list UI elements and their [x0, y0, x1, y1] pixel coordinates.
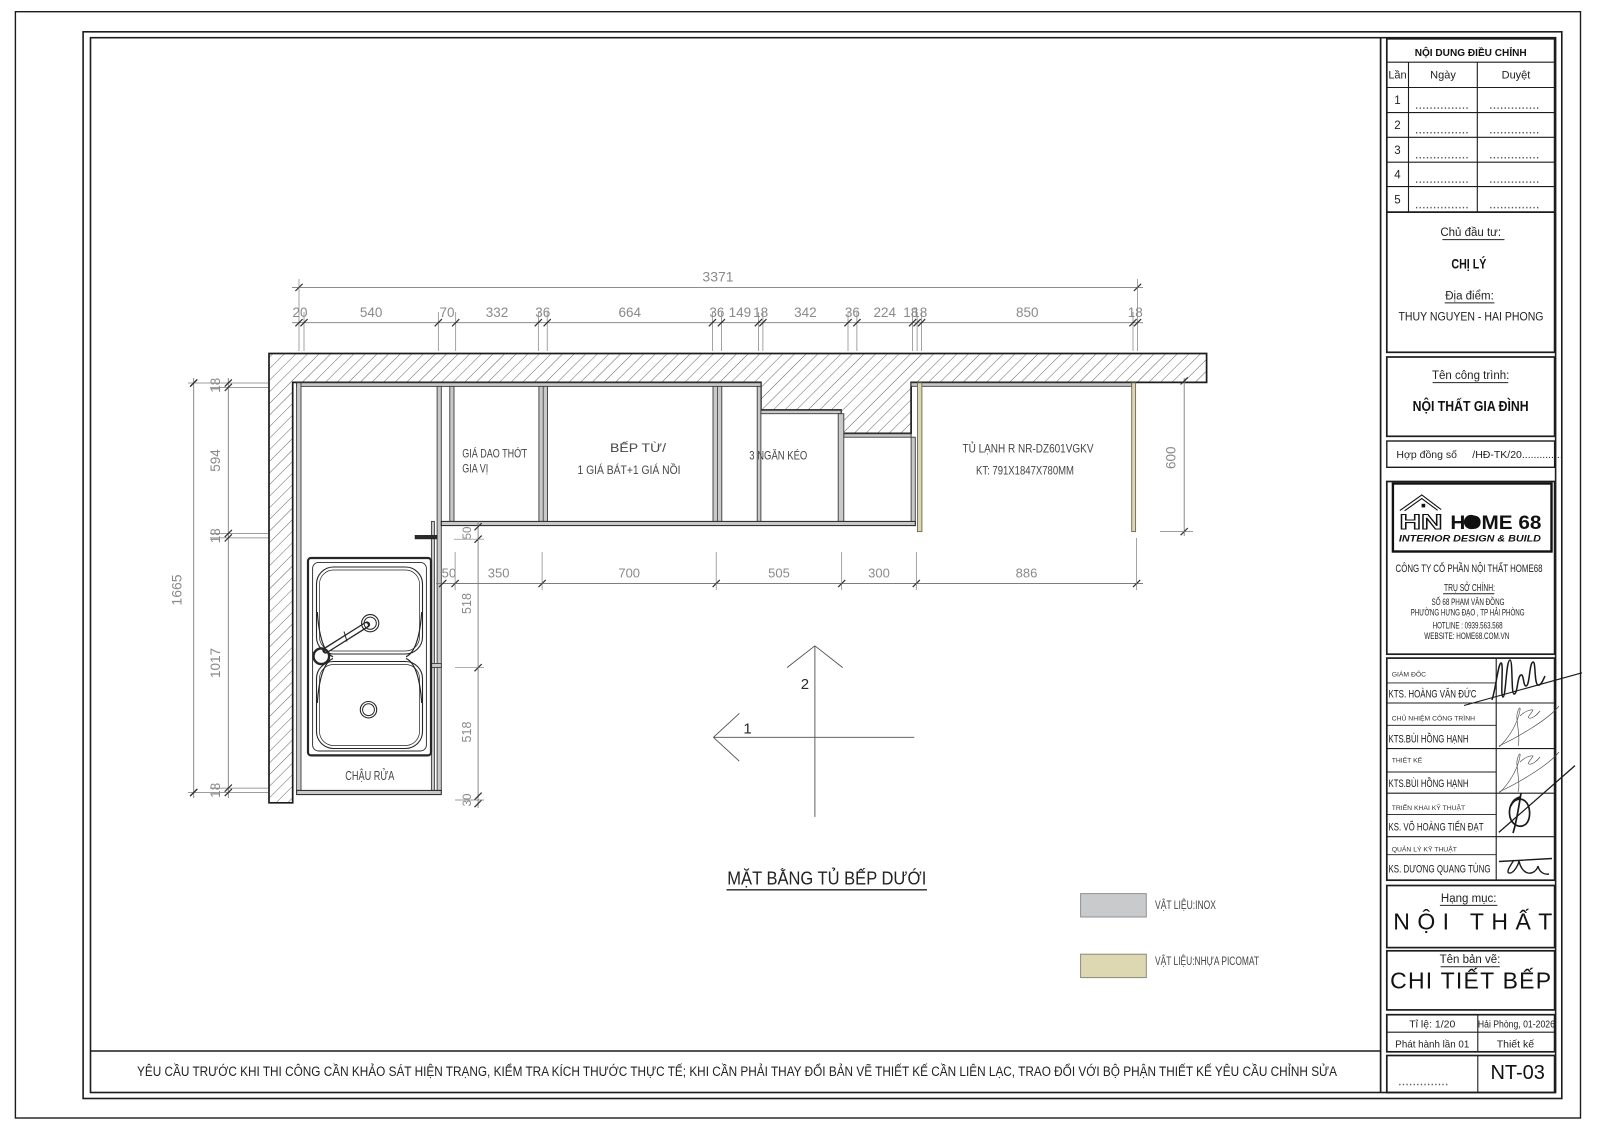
svg-text:KT: 791X1847X780MM: KT: 791X1847X780MM	[976, 464, 1074, 478]
svg-text:36: 36	[535, 305, 550, 320]
svg-text:664: 664	[619, 305, 642, 320]
svg-text:3 NGĂN KÉO: 3 NGĂN KÉO	[749, 448, 807, 463]
svg-text:Hợp đồng số: Hợp đồng số	[1396, 449, 1457, 461]
svg-text:GIÁ DAO THỚT: GIÁ DAO THỚT	[462, 446, 527, 461]
svg-text:Hải Phòng, 01-2026: Hải Phòng, 01-2026	[1478, 1019, 1555, 1030]
svg-text:30: 30	[462, 794, 474, 807]
svg-text:TRIỂN KHAI KỸ THUẬT: TRIỂN KHAI KỸ THUẬT	[1392, 803, 1466, 812]
svg-text:YÊU CẦU TRƯỚC KHI THI CÔNG CẦN: YÊU CẦU TRƯỚC KHI THI CÔNG CẦN KHẢO SÁT …	[137, 1064, 1337, 1079]
svg-text:18: 18	[208, 528, 223, 543]
svg-text:Tên bản vẽ:: Tên bản vẽ:	[1440, 954, 1501, 966]
svg-text:KS. DƯƠNG QUANG TÙNG: KS. DƯƠNG QUANG TÙNG	[1389, 863, 1491, 876]
svg-text:1: 1	[743, 721, 751, 738]
svg-text:18: 18	[208, 378, 223, 393]
svg-text:2: 2	[1394, 120, 1400, 132]
svg-text:THUY NGUYEN - HAI PHONG: THUY NGUYEN - HAI PHONG	[1399, 312, 1544, 324]
svg-text:/HĐ-TK/20..............: /HĐ-TK/20..............	[1472, 449, 1562, 461]
svg-text:3371: 3371	[702, 269, 733, 285]
svg-text:CHẬU RỬA: CHẬU RỬA	[345, 768, 394, 783]
svg-text:Địa điểm:: Địa điểm:	[1445, 291, 1494, 303]
svg-text:700: 700	[618, 566, 640, 581]
svg-text:PHƯỜNG HƯNG ĐẠO , TP HẢI PHÒNG: PHƯỜNG HƯNG ĐẠO , TP HẢI PHÒNG	[1411, 606, 1525, 617]
svg-text:505: 505	[768, 566, 790, 581]
svg-text:518: 518	[460, 593, 474, 614]
svg-text:886: 886	[1016, 566, 1038, 581]
svg-text:Hạng mục:: Hạng mục:	[1441, 893, 1497, 905]
svg-text:KTS. HOÀNG VĂN ĐỨC: KTS. HOÀNG VĂN ĐỨC	[1389, 688, 1477, 701]
svg-text:3: 3	[1394, 145, 1400, 157]
svg-text:332: 332	[486, 305, 509, 320]
svg-text:NỘI THẤT GIA ĐÌNH: NỘI THẤT GIA ĐÌNH	[1413, 397, 1529, 415]
svg-text:QUẢN LÝ KỸ THUẬT: QUẢN LÝ KỸ THUẬT	[1392, 845, 1457, 854]
svg-text:518: 518	[460, 722, 474, 743]
svg-text:850: 850	[1016, 305, 1039, 320]
svg-text:CHỊ LÝ: CHỊ LÝ	[1451, 257, 1486, 272]
svg-text:4: 4	[1394, 169, 1401, 181]
svg-text:VẬT LIỆU:INOX: VẬT LIỆU:INOX	[1155, 899, 1216, 912]
svg-text:149: 149	[729, 305, 752, 320]
svg-text:HOTLINE : 0939.563.568: HOTLINE : 0939.563.568	[1433, 621, 1503, 631]
svg-text:1 GIÁ BÁT+1 GIÁ NỒI: 1 GIÁ BÁT+1 GIÁ NỒI	[578, 462, 681, 477]
svg-text:SỐ 68 PHẠM VĂN ĐỒNG: SỐ 68 PHẠM VĂN ĐỒNG	[1432, 596, 1505, 607]
svg-text:300: 300	[868, 566, 890, 581]
svg-text:NỘI DUNG ĐIỀU CHỈNH: NỘI DUNG ĐIỀU CHỈNH	[1415, 46, 1527, 59]
svg-text:KTS.BÙI HỒNG HẠNH: KTS.BÙI HỒNG HẠNH	[1389, 777, 1469, 790]
svg-text:NỘI THẤT: NỘI THẤT	[1393, 908, 1552, 935]
svg-text:CÔNG TY CỔ PHẦN NỘI THẤT HOME6: CÔNG TY CỔ PHẦN NỘI THẤT HOME68	[1396, 562, 1543, 575]
svg-text:224: 224	[874, 305, 897, 320]
svg-text:Duyệt: Duyệt	[1502, 70, 1531, 82]
svg-text:2: 2	[801, 676, 809, 693]
svg-text:CHỦ NHIỆM CÔNG TRÌNH: CHỦ NHIỆM CÔNG TRÌNH	[1392, 713, 1475, 722]
svg-text:NT-03: NT-03	[1490, 1062, 1544, 1084]
svg-text:MẶT BẰNG TỦ BẾP DƯỚI: MẶT BẰNG TỦ BẾP DƯỚI	[727, 868, 926, 889]
svg-text:540: 540	[360, 305, 383, 320]
svg-text:350: 350	[488, 566, 510, 581]
svg-text:Phát hành lần 01: Phát hành lần 01	[1395, 1039, 1469, 1051]
svg-text:20: 20	[292, 305, 307, 320]
svg-text:TRỤ SỞ CHÍNH:: TRỤ SỞ CHÍNH:	[1444, 582, 1495, 594]
svg-text:GIA VỊ: GIA VỊ	[462, 462, 488, 476]
svg-text:INTERIOR DESIGN & BUILD: INTERIOR DESIGN & BUILD	[1399, 534, 1541, 544]
svg-text:KTS.BÙI HỒNG HẠNH: KTS.BÙI HỒNG HẠNH	[1389, 732, 1469, 745]
svg-text:Tỉ lệ: 1/20: Tỉ lệ: 1/20	[1409, 1018, 1455, 1030]
svg-text:Tên công trình:: Tên công trình:	[1432, 370, 1509, 382]
svg-text:5: 5	[1394, 194, 1400, 206]
svg-text:KS. VÕ HOÀNG TIẾN ĐẠT: KS. VÕ HOÀNG TIẾN ĐẠT	[1389, 820, 1484, 833]
svg-text:HN: HN	[1400, 511, 1443, 534]
svg-text:VẬT LIỆU:NHỰA PICOMAT: VẬT LIỆU:NHỰA PICOMAT	[1155, 955, 1259, 968]
svg-text:Ngày: Ngày	[1430, 70, 1456, 82]
svg-text:600: 600	[1164, 446, 1179, 469]
svg-text:36: 36	[709, 305, 724, 320]
svg-text:50: 50	[462, 527, 474, 540]
svg-text:BẾP TỪ/: BẾP TỪ/	[610, 440, 667, 455]
svg-text:70: 70	[439, 305, 454, 320]
svg-text:18: 18	[912, 305, 927, 320]
svg-text:1: 1	[1394, 95, 1400, 107]
svg-text:18: 18	[1128, 305, 1143, 320]
svg-text:1665: 1665	[169, 574, 185, 605]
svg-text:Lần: Lần	[1388, 70, 1406, 82]
svg-text:Chủ đầu tư:: Chủ đầu tư:	[1440, 227, 1501, 239]
svg-text:18: 18	[753, 305, 768, 320]
svg-text:18: 18	[208, 783, 223, 798]
svg-text:1017: 1017	[208, 648, 223, 678]
svg-text:Thiết kế: Thiết kế	[1497, 1039, 1535, 1051]
svg-text:36: 36	[845, 305, 860, 320]
svg-text:342: 342	[794, 305, 817, 320]
svg-text:TỦ LẠNH R NR-DZ601VGKV: TỦ LẠNH R NR-DZ601VGKV	[963, 441, 1095, 456]
svg-text:WEBSITE: HOME68.COM.VN: WEBSITE: HOME68.COM.VN	[1424, 631, 1509, 641]
svg-text:50: 50	[442, 566, 456, 581]
svg-text:594: 594	[208, 449, 223, 472]
svg-text:CHI TIẾT BẾP: CHI TIẾT BẾP	[1390, 967, 1551, 994]
